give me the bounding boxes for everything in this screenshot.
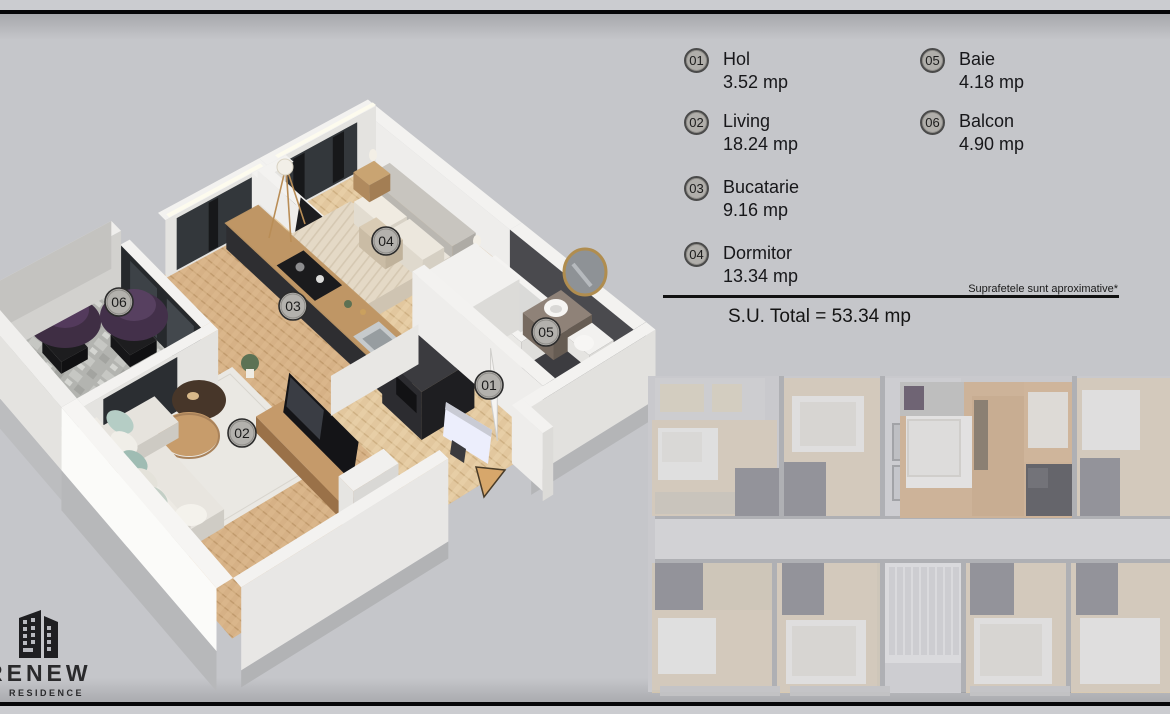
svg-text:04: 04 <box>378 233 394 249</box>
svg-text:02: 02 <box>234 425 250 441</box>
svg-text:05: 05 <box>538 324 554 340</box>
svg-text:01: 01 <box>481 377 497 393</box>
svg-text:03: 03 <box>285 298 301 314</box>
svg-text:06: 06 <box>111 294 127 310</box>
